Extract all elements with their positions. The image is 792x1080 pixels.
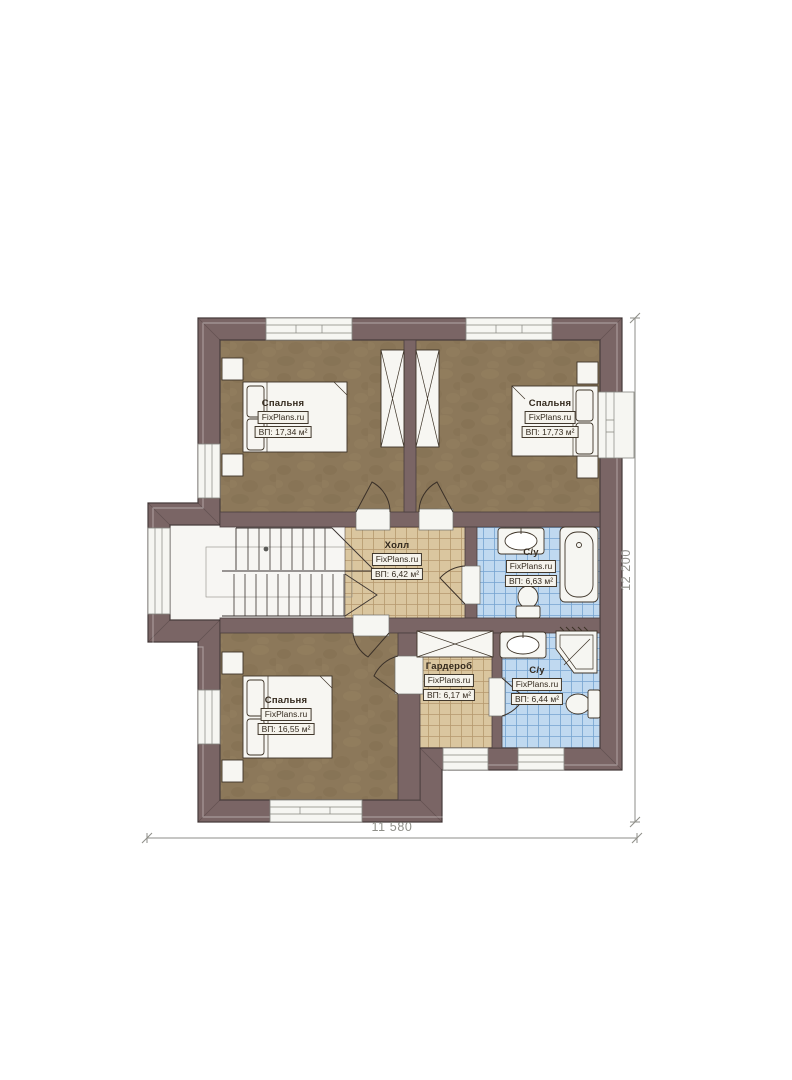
window-symbol bbox=[598, 392, 634, 458]
window-symbol bbox=[270, 800, 362, 822]
floor-plan-drawing bbox=[0, 0, 792, 1080]
nightstand-symbol bbox=[577, 456, 598, 478]
nightstand-symbol bbox=[222, 760, 243, 782]
sink-symbol bbox=[500, 632, 546, 658]
dimension-line-bottom bbox=[142, 833, 642, 843]
floor-plan-page: Спальня FixPlans.ru ВП: 17,34 м² Спальня… bbox=[0, 0, 792, 1080]
nightstand-symbol bbox=[222, 358, 243, 380]
window-symbol bbox=[466, 318, 552, 340]
window-symbol bbox=[443, 748, 488, 770]
window-symbol bbox=[198, 444, 220, 498]
closet-symbol bbox=[381, 350, 404, 447]
toilet-symbol bbox=[516, 586, 540, 618]
closet-symbol bbox=[417, 631, 493, 657]
nightstand-symbol bbox=[222, 454, 243, 476]
dimension-height-label: 12 200 bbox=[619, 549, 633, 591]
window-symbol bbox=[198, 690, 220, 744]
sink-symbol bbox=[498, 528, 544, 554]
dimension-width-label: 11 580 bbox=[372, 820, 413, 834]
bathtub-symbol bbox=[560, 527, 598, 602]
window-symbol bbox=[518, 748, 564, 770]
closet-symbol bbox=[416, 350, 439, 447]
window-symbol bbox=[266, 318, 352, 340]
nightstand-symbol bbox=[577, 362, 598, 384]
nightstand-symbol bbox=[222, 652, 243, 674]
floor-stair-room bbox=[170, 525, 345, 620]
window-symbol bbox=[148, 528, 170, 614]
